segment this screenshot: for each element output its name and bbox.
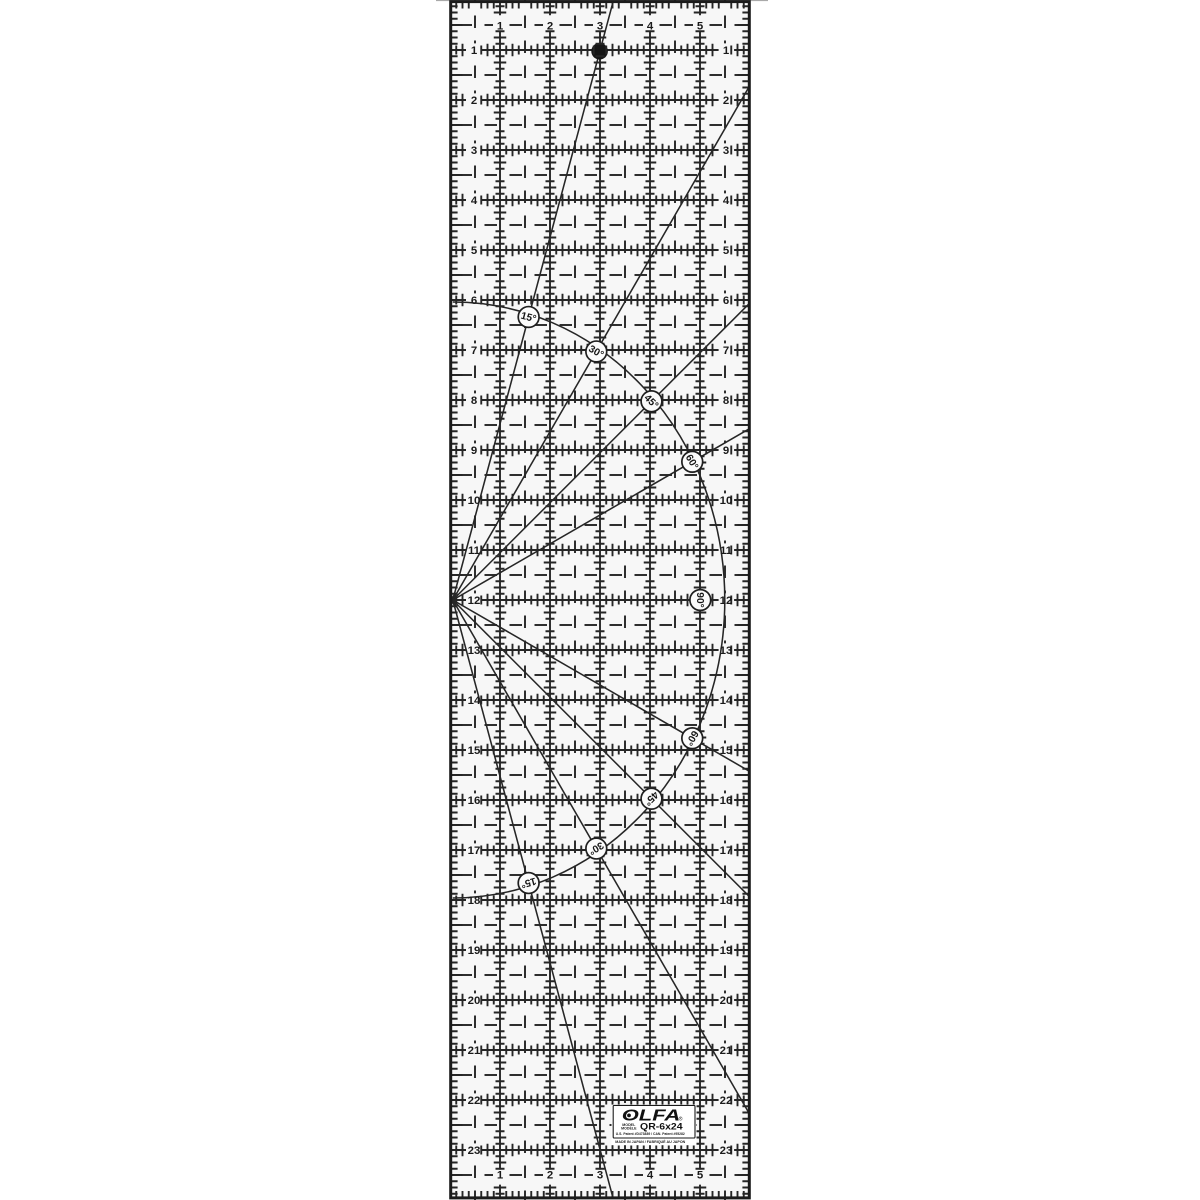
svg-text:18: 18 xyxy=(720,895,733,907)
svg-text:90°: 90° xyxy=(694,592,705,607)
svg-text:18: 18 xyxy=(468,895,481,907)
svg-text:4: 4 xyxy=(723,195,730,207)
svg-text:5: 5 xyxy=(697,1170,704,1182)
svg-text:1: 1 xyxy=(497,1170,504,1182)
svg-text:19: 19 xyxy=(468,945,481,957)
svg-text:1: 1 xyxy=(497,21,504,33)
svg-text:22: 22 xyxy=(468,1095,481,1107)
svg-text:U.S. Patent #D473889 / CAN. Pa: U.S. Patent #D473889 / CAN. Patent #9528… xyxy=(616,1132,685,1136)
svg-text:9: 9 xyxy=(723,445,729,457)
svg-text:8: 8 xyxy=(471,395,477,407)
svg-text:7: 7 xyxy=(723,345,729,357)
svg-text:6: 6 xyxy=(723,295,729,307)
svg-text:5: 5 xyxy=(471,245,478,257)
svg-text:17: 17 xyxy=(720,845,733,857)
svg-text:3: 3 xyxy=(597,21,603,33)
svg-text:23: 23 xyxy=(468,1145,481,1157)
svg-text:MODÈLE: MODÈLE xyxy=(621,1126,637,1131)
svg-text:3: 3 xyxy=(597,1170,603,1182)
svg-text:15: 15 xyxy=(720,745,733,757)
svg-text:9: 9 xyxy=(471,445,477,457)
svg-text:5: 5 xyxy=(723,245,730,257)
svg-text:14: 14 xyxy=(468,695,481,707)
svg-text:4: 4 xyxy=(647,21,654,33)
svg-text:2: 2 xyxy=(471,95,477,107)
svg-text:4: 4 xyxy=(471,195,478,207)
svg-text:14: 14 xyxy=(720,695,733,707)
svg-text:21: 21 xyxy=(468,1045,481,1057)
svg-text:22: 22 xyxy=(720,1095,733,1107)
svg-text:1: 1 xyxy=(723,45,730,57)
svg-text:1: 1 xyxy=(471,45,478,57)
svg-text:16: 16 xyxy=(720,795,733,807)
svg-text:2: 2 xyxy=(547,21,553,33)
svg-text:16: 16 xyxy=(468,795,481,807)
svg-text:4: 4 xyxy=(647,1170,654,1182)
svg-text:11: 11 xyxy=(468,545,481,557)
svg-text:10: 10 xyxy=(720,495,733,507)
svg-text:2: 2 xyxy=(547,1170,553,1182)
svg-text:15: 15 xyxy=(468,745,481,757)
svg-text:13: 13 xyxy=(720,645,733,657)
svg-text:12: 12 xyxy=(468,595,481,607)
svg-text:23: 23 xyxy=(720,1145,733,1157)
svg-text:21: 21 xyxy=(720,1045,733,1057)
svg-text:10: 10 xyxy=(468,495,481,507)
svg-text:3: 3 xyxy=(723,145,729,157)
svg-text:20: 20 xyxy=(468,995,481,1007)
svg-text:7: 7 xyxy=(471,345,477,357)
svg-text:11: 11 xyxy=(720,545,733,557)
svg-text:8: 8 xyxy=(723,395,729,407)
svg-text:2: 2 xyxy=(723,95,729,107)
svg-text:12: 12 xyxy=(720,595,733,607)
svg-text:QR-6x24: QR-6x24 xyxy=(640,1122,683,1132)
svg-text:20: 20 xyxy=(720,995,733,1007)
svg-text:19: 19 xyxy=(720,945,733,957)
svg-text:5: 5 xyxy=(697,21,704,33)
svg-text:13: 13 xyxy=(468,645,481,657)
svg-text:6: 6 xyxy=(471,295,477,307)
svg-text:MADE IN JAPAN / FABRIQUÉ AU JA: MADE IN JAPAN / FABRIQUÉ AU JAPON xyxy=(615,1139,685,1144)
svg-text:17: 17 xyxy=(468,845,481,857)
svg-text:3: 3 xyxy=(471,145,477,157)
